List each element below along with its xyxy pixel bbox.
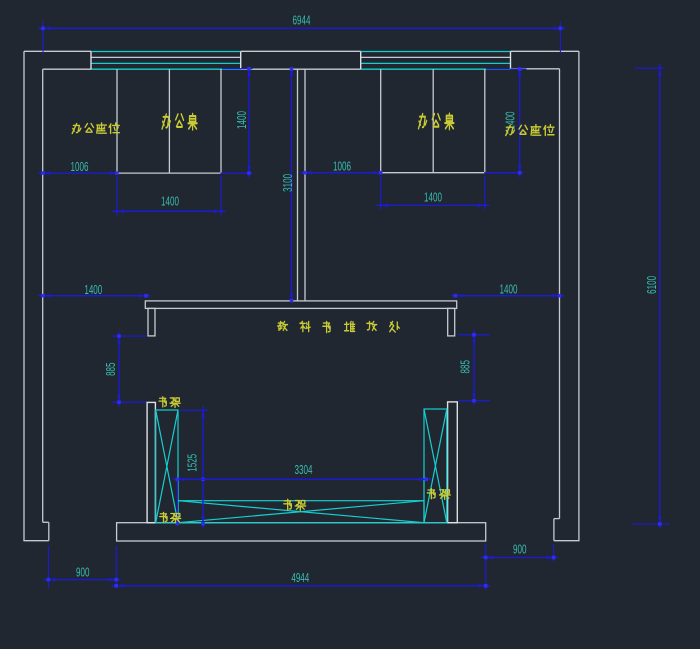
svg-text:885: 885	[459, 360, 473, 374]
svg-text:1400: 1400	[84, 283, 102, 297]
svg-text:1400: 1400	[235, 111, 249, 129]
svg-text:900: 900	[513, 543, 527, 557]
svg-text:900: 900	[76, 566, 90, 580]
svg-text:1525: 1525	[186, 454, 200, 472]
svg-text:6100: 6100	[645, 276, 659, 294]
svg-text:885: 885	[104, 362, 118, 376]
svg-text:1400: 1400	[161, 195, 179, 209]
svg-text:1400: 1400	[424, 191, 442, 205]
svg-text:3100: 3100	[281, 174, 295, 192]
svg-text:1006: 1006	[71, 160, 89, 174]
svg-text:6944: 6944	[293, 14, 311, 28]
svg-text:3304: 3304	[295, 463, 313, 477]
svg-text:1006: 1006	[333, 160, 351, 174]
svg-text:1400: 1400	[500, 283, 518, 297]
svg-text:4944: 4944	[291, 571, 309, 585]
